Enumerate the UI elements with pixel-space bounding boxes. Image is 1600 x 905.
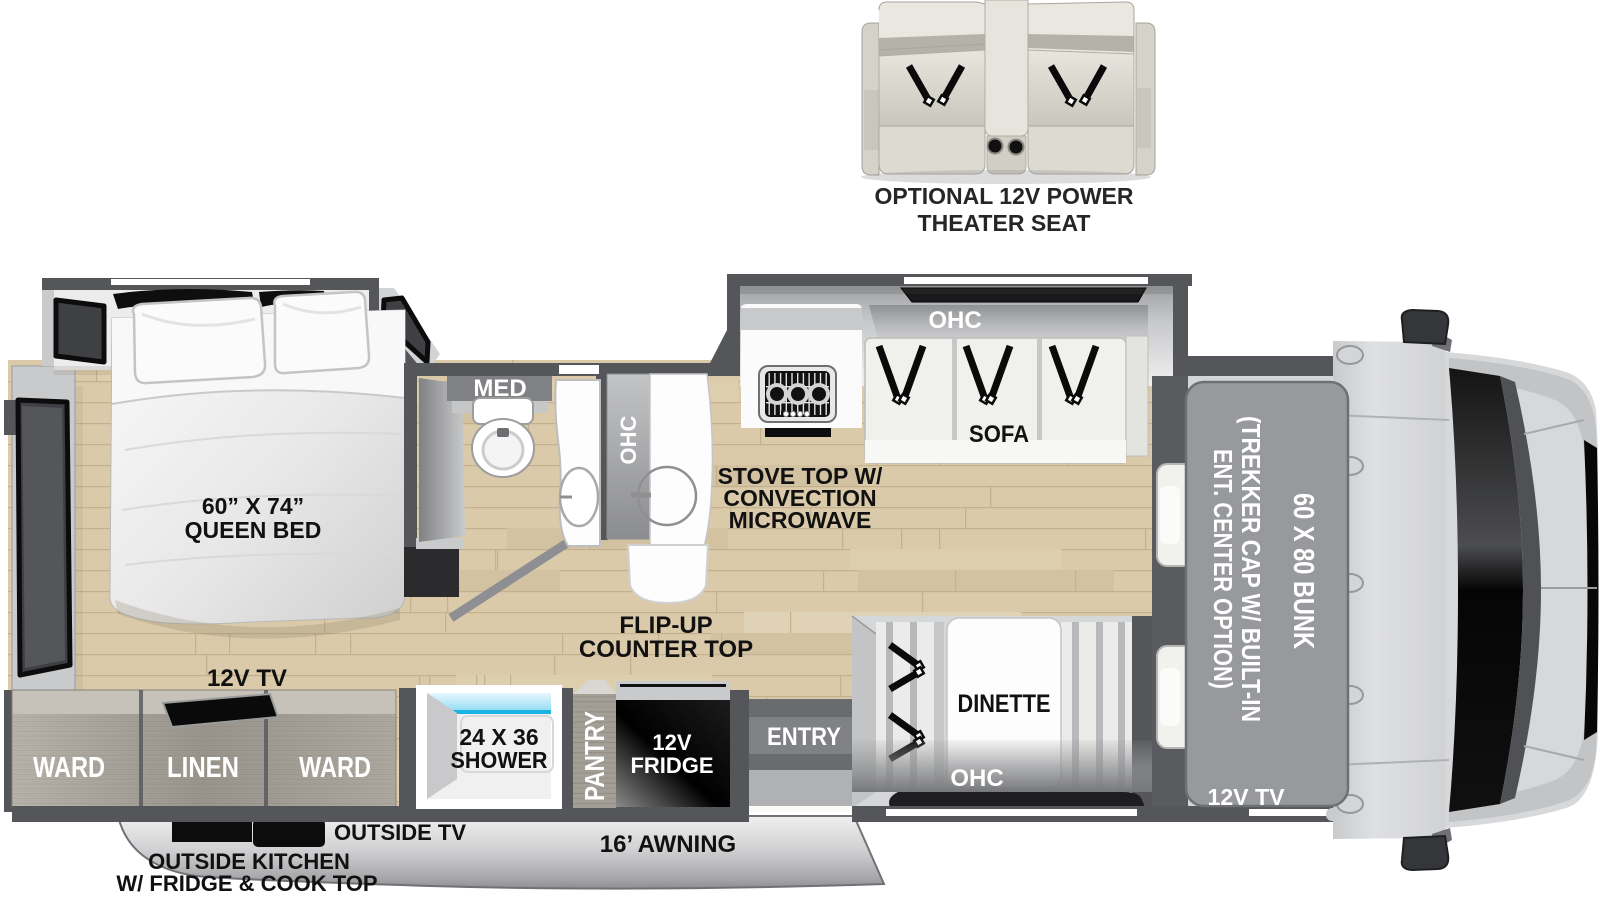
svg-text:60 X 80 BUNK: 60 X 80 BUNK bbox=[1287, 493, 1319, 649]
svg-text:QUEEN BED: QUEEN BED bbox=[185, 517, 322, 543]
svg-text:ENT. CENTER OPTION): ENT. CENTER OPTION) bbox=[1208, 449, 1238, 689]
svg-text:FRIDGE: FRIDGE bbox=[630, 753, 713, 778]
svg-text:FLIP-UP: FLIP-UP bbox=[619, 612, 712, 639]
svg-text:SOFA: SOFA bbox=[969, 421, 1029, 448]
svg-text:DINETTE: DINETTE bbox=[958, 690, 1051, 718]
svg-text:SHOWER: SHOWER bbox=[451, 747, 548, 773]
svg-text:(TREKKER CAP W/ BUILT-IN: (TREKKER CAP W/ BUILT-IN bbox=[1236, 416, 1266, 722]
svg-text:MICROWAVE: MICROWAVE bbox=[729, 507, 872, 533]
svg-text:PANTRY: PANTRY bbox=[579, 711, 610, 801]
svg-text:OHC: OHC bbox=[950, 765, 1003, 792]
svg-text:OHC: OHC bbox=[928, 307, 981, 334]
svg-text:COUNTER TOP: COUNTER TOP bbox=[579, 636, 753, 663]
svg-text:WARD: WARD bbox=[299, 752, 371, 784]
svg-text:OHC: OHC bbox=[616, 415, 641, 464]
svg-text:WARD: WARD bbox=[33, 752, 105, 784]
svg-text:12V TV: 12V TV bbox=[207, 665, 287, 692]
svg-text:OPTIONAL 12V POWER: OPTIONAL 12V POWER bbox=[874, 183, 1133, 209]
svg-text:W/ FRIDGE & COOK TOP: W/ FRIDGE & COOK TOP bbox=[116, 871, 377, 896]
svg-text:60” X 74”: 60” X 74” bbox=[202, 493, 304, 519]
svg-text:16’ AWNING: 16’ AWNING bbox=[600, 831, 736, 858]
svg-text:LINEN: LINEN bbox=[167, 752, 239, 784]
svg-text:OUTSIDE TV: OUTSIDE TV bbox=[334, 820, 466, 845]
svg-text:ENTRY: ENTRY bbox=[767, 723, 841, 751]
svg-text:THEATER SEAT: THEATER SEAT bbox=[918, 210, 1091, 236]
svg-text:12V: 12V bbox=[652, 730, 691, 755]
svg-text:12V TV: 12V TV bbox=[1208, 784, 1286, 810]
